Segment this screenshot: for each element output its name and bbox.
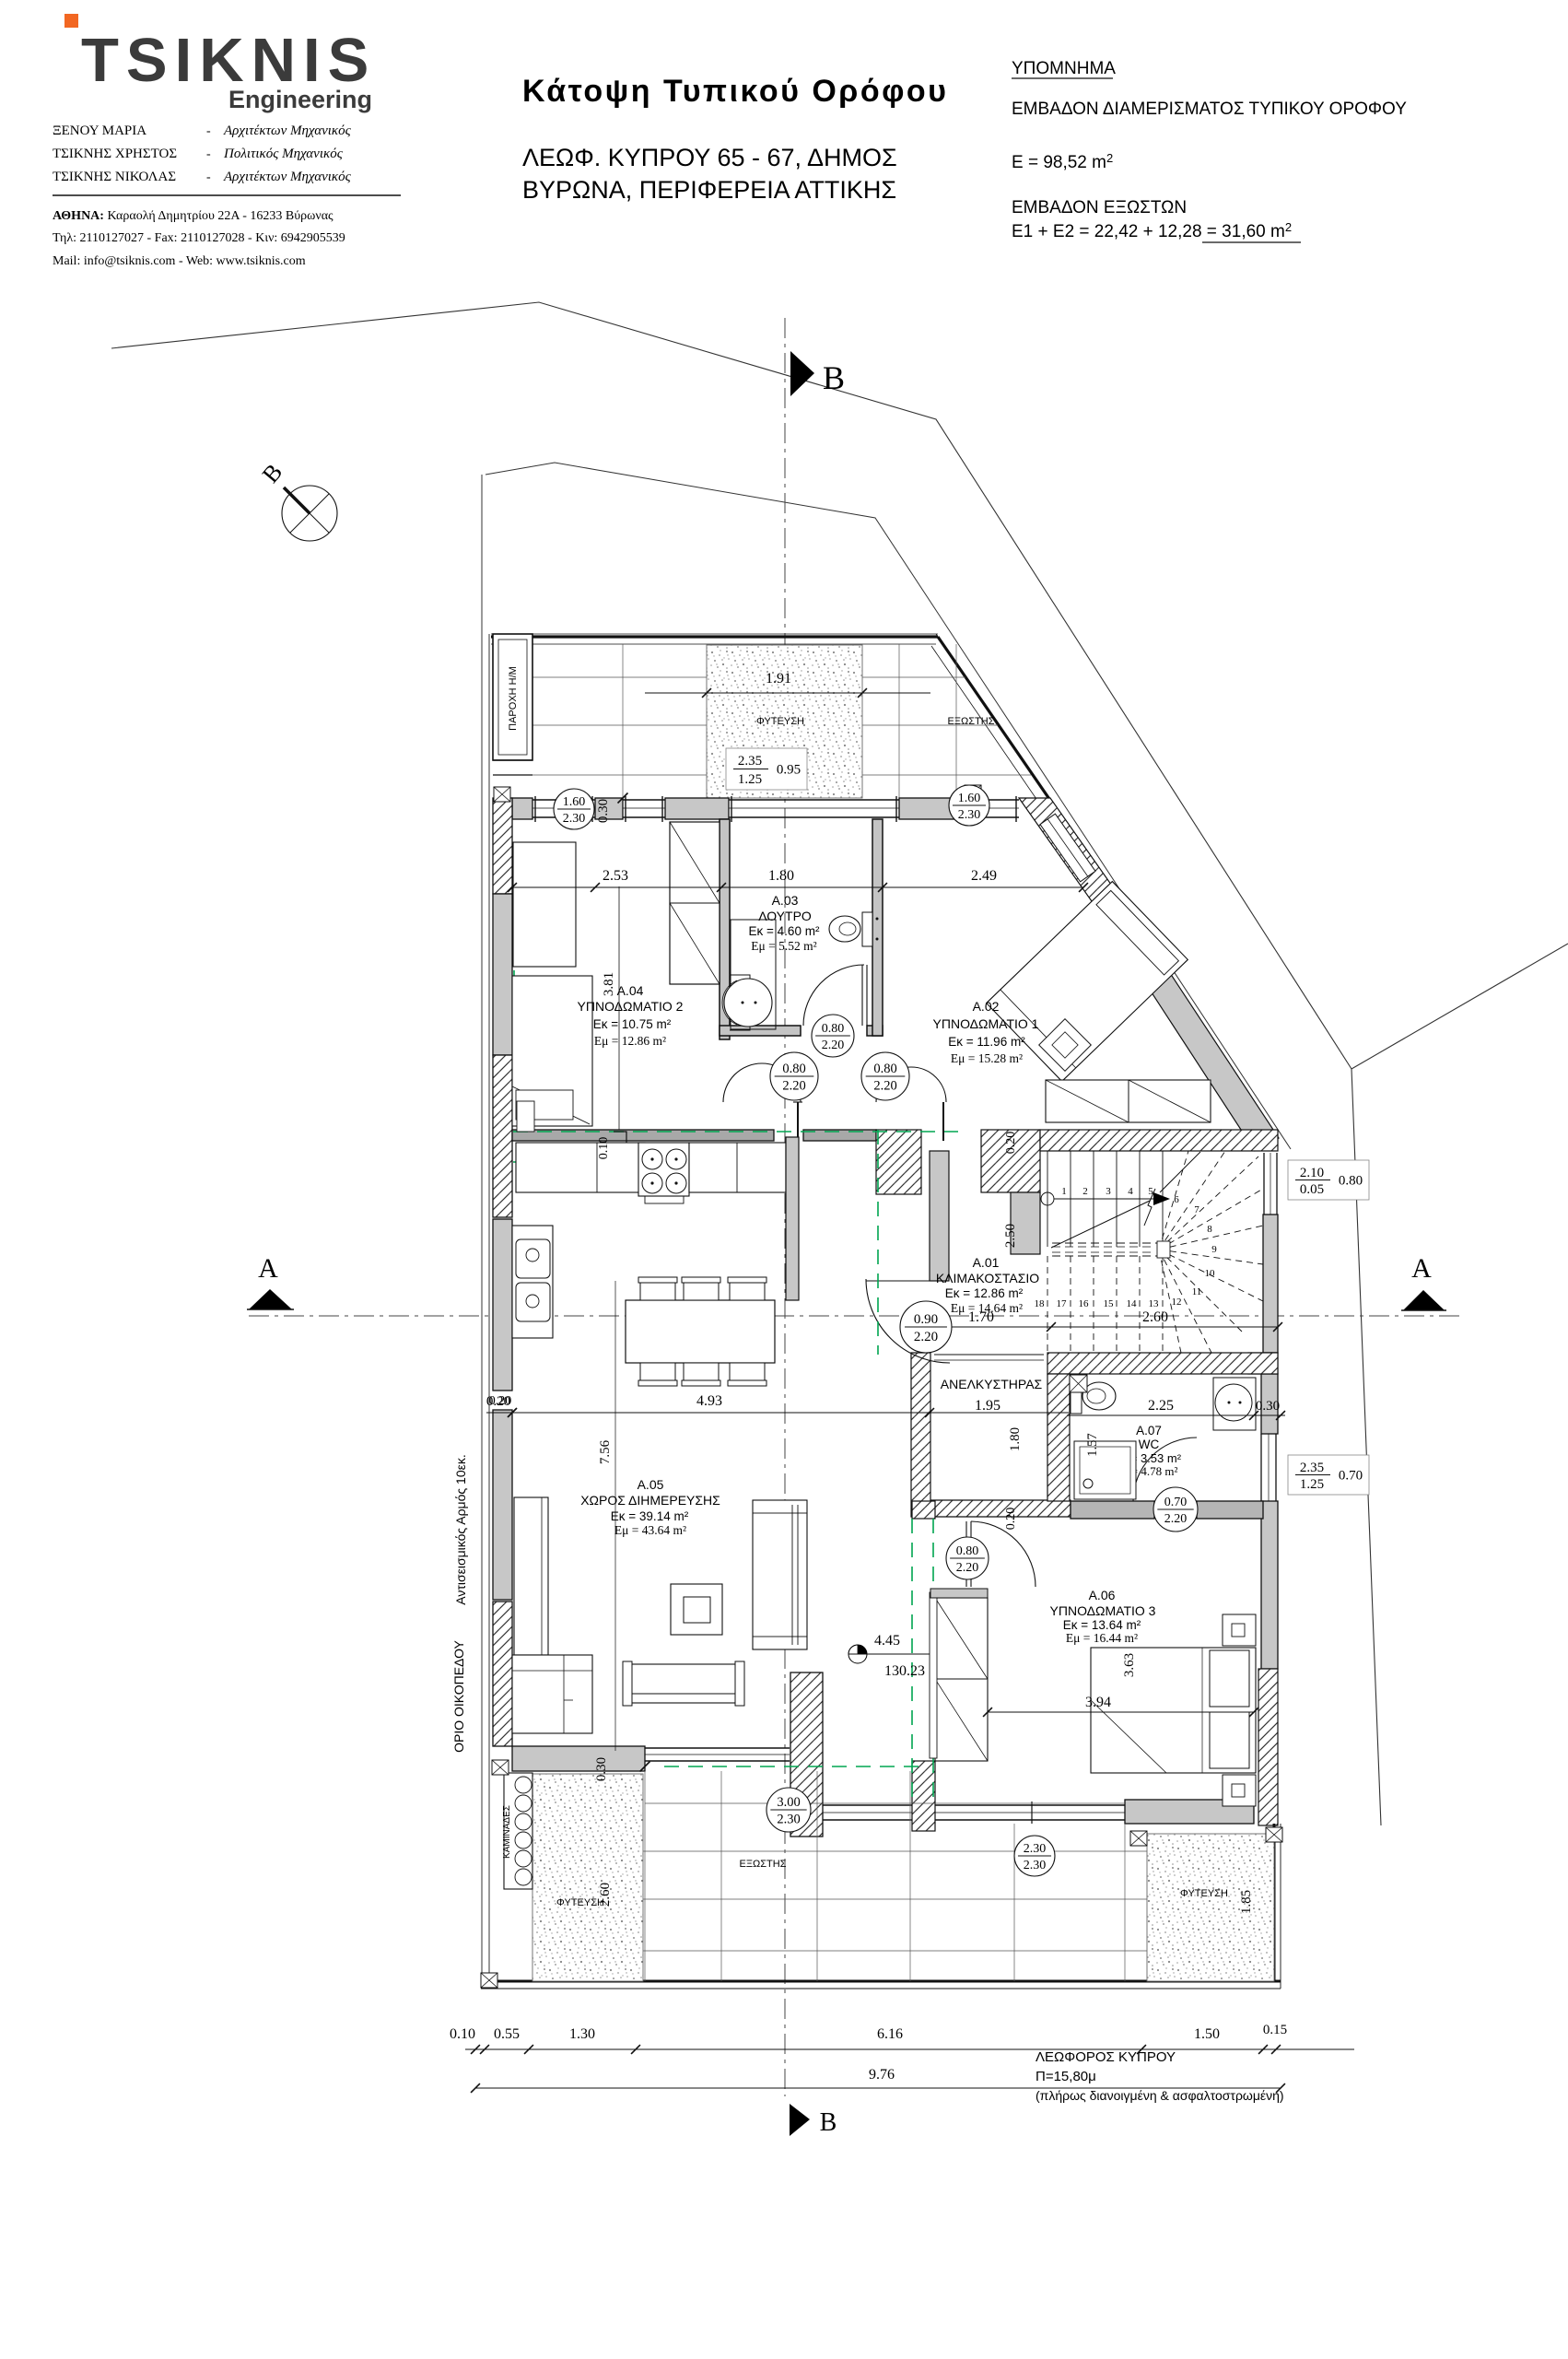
svg-text:13: 13 — [1149, 1298, 1160, 1309]
svg-text:7: 7 — [1194, 1204, 1199, 1215]
svg-text:ΞΕΝΟΥ ΜΑΡΙΑ: ΞΕΝΟΥ ΜΑΡΙΑ — [53, 123, 146, 138]
svg-text:A: A — [258, 1253, 278, 1284]
svg-text:1.95: 1.95 — [975, 1398, 1000, 1414]
svg-text:4: 4 — [1128, 1186, 1133, 1197]
svg-text:1.91: 1.91 — [766, 671, 791, 687]
svg-text:1.80: 1.80 — [768, 868, 794, 884]
svg-text:1.30: 1.30 — [569, 2026, 595, 2042]
svg-text:1.25: 1.25 — [1300, 1477, 1324, 1492]
svg-text:B: B — [823, 359, 845, 396]
svg-text:Εμ = 43.64 m²: Εμ = 43.64 m² — [614, 1523, 686, 1537]
svg-text:A.06: A.06 — [1089, 1588, 1116, 1602]
svg-text:Εκ = 13.64 m²: Εκ = 13.64 m² — [1063, 1618, 1141, 1632]
svg-text:2.30: 2.30 — [1024, 1842, 1047, 1856]
svg-text:0.20: 0.20 — [1004, 1132, 1018, 1155]
svg-text:2.25: 2.25 — [1148, 1398, 1174, 1414]
svg-text:E1 + E2 = 22,42 + 12,28 = 31,: E1 + E2 = 22,42 + 12,28 = 31,60 m2 — [1012, 220, 1292, 241]
svg-text:Κάτοψη Τυπικού Ορόφου: Κάτοψη Τυπικού Ορόφου — [522, 74, 948, 109]
svg-text:9.76: 9.76 — [869, 2067, 895, 2083]
svg-text:Εμ = 12.86 m²: Εμ = 12.86 m² — [594, 1034, 666, 1048]
svg-text:2.30: 2.30 — [777, 1813, 800, 1827]
svg-text:ΠΑΡΟΧΗ Η/Μ: ΠΑΡΟΧΗ Η/Μ — [508, 666, 519, 731]
svg-text:1.57: 1.57 — [1085, 1433, 1100, 1456]
svg-text:Π=15,80μ: Π=15,80μ — [1036, 2069, 1096, 2084]
svg-text:0.80: 0.80 — [1339, 1174, 1363, 1189]
svg-text:Εκ = 11.96 m²: Εκ = 11.96 m² — [948, 1035, 1025, 1049]
svg-text:0.30: 0.30 — [596, 799, 611, 823]
svg-text:2: 2 — [1082, 1186, 1088, 1197]
svg-text:ΤΣΙΚΝΗΣ ΝΙΚΟΛΑΣ: ΤΣΙΚΝΗΣ ΝΙΚΟΛΑΣ — [53, 170, 176, 184]
svg-text:10: 10 — [1205, 1268, 1216, 1279]
svg-text:Αρχιτέκτων Μηχανικός: Αρχιτέκτων Μηχανικός — [223, 123, 352, 138]
svg-text:-: - — [206, 124, 211, 138]
svg-text:0.80: 0.80 — [782, 1062, 805, 1076]
svg-text:4.93: 4.93 — [696, 1393, 722, 1409]
svg-text:0.05: 0.05 — [1300, 1182, 1324, 1197]
svg-text:WC: WC — [1139, 1438, 1160, 1451]
svg-text:ΥΠΟΜΝΗΜΑ: ΥΠΟΜΝΗΜΑ — [1012, 59, 1116, 78]
svg-text:0.20: 0.20 — [1004, 1508, 1018, 1531]
svg-text:-: - — [206, 147, 211, 161]
svg-text:0.10: 0.10 — [450, 2026, 475, 2042]
svg-text:0.30: 0.30 — [1256, 1399, 1280, 1414]
svg-text:ΟΡΙΟ ΟΙΚΟΠΕΔΟΥ: ΟΡΙΟ ΟΙΚΟΠΕΔΟΥ — [451, 1639, 466, 1752]
svg-text:11: 11 — [1192, 1286, 1202, 1297]
svg-text:Mail: info@tsiknis.com - Web:: Mail: info@tsiknis.com - Web: www.tsikni… — [53, 254, 306, 268]
svg-text:Εκ = 4.60 m²: Εκ = 4.60 m² — [749, 924, 820, 938]
svg-text:0.55: 0.55 — [494, 2026, 520, 2042]
svg-text:2.10: 2.10 — [1300, 1166, 1324, 1180]
svg-text:3.81: 3.81 — [602, 972, 616, 996]
svg-text:14: 14 — [1127, 1298, 1138, 1309]
svg-text:Engineering: Engineering — [228, 86, 372, 113]
svg-text:0.95: 0.95 — [777, 763, 801, 778]
svg-text:6.16: 6.16 — [877, 2026, 903, 2042]
svg-text:Εκ = 12.86 m²: Εκ = 12.86 m² — [945, 1286, 1024, 1300]
svg-text:ΛΟΥΤΡΟ: ΛΟΥΤΡΟ — [758, 909, 812, 923]
svg-text:0.15: 0.15 — [1263, 2023, 1287, 2037]
svg-text:2.53: 2.53 — [603, 868, 628, 884]
svg-text:E = 98,52 m2: E = 98,52 m2 — [1012, 151, 1113, 172]
svg-text:A: A — [1411, 1253, 1432, 1284]
svg-text:16: 16 — [1079, 1298, 1090, 1309]
svg-text:Εμ = 5.52 m²: Εμ = 5.52 m² — [751, 939, 816, 953]
svg-text:ΚΛΙΜΑΚΟΣΤΑΣΙΟ: ΚΛΙΜΑΚΟΣΤΑΣΙΟ — [936, 1271, 1039, 1285]
svg-text:5: 5 — [1148, 1186, 1153, 1197]
svg-text:3.00: 3.00 — [777, 1795, 800, 1810]
svg-text:2.20: 2.20 — [914, 1330, 938, 1344]
svg-text:Εμ = 15.28 m²: Εμ = 15.28 m² — [951, 1051, 1023, 1065]
svg-text:ΕΞΩΣΤΗΣ: ΕΞΩΣΤΗΣ — [740, 1859, 787, 1870]
svg-text:A.05: A.05 — [638, 1477, 664, 1492]
svg-text:2.35: 2.35 — [738, 754, 762, 769]
svg-text:Αρχιτέκτων Μηχανικός: Αρχιτέκτων Μηχανικός — [223, 170, 352, 184]
svg-text:2.60: 2.60 — [1142, 1309, 1168, 1325]
svg-text:ΥΠΝΟΔΩΜΑΤΙΟ 1: ΥΠΝΟΔΩΜΑΤΙΟ 1 — [933, 1016, 1039, 1031]
svg-text:TSIKNIS: TSIKNIS — [81, 26, 376, 95]
svg-text:3.63: 3.63 — [1122, 1653, 1137, 1677]
svg-text:2.49: 2.49 — [971, 868, 997, 884]
svg-text:9: 9 — [1211, 1244, 1217, 1255]
svg-text:ΕΞΩΣΤΗΣ: ΕΞΩΣΤΗΣ — [948, 716, 995, 727]
svg-text:Πολιτικός Μηχανικός: Πολιτικός Μηχανικός — [223, 147, 344, 161]
svg-text:0.80: 0.80 — [873, 1062, 896, 1076]
svg-text:1: 1 — [1061, 1186, 1067, 1197]
svg-text:1.60: 1.60 — [958, 792, 981, 805]
svg-text:0.30: 0.30 — [594, 1757, 609, 1781]
svg-text:0.70: 0.70 — [1164, 1496, 1188, 1509]
svg-text:A.03: A.03 — [772, 893, 799, 908]
svg-text:1.50: 1.50 — [1194, 2026, 1220, 2042]
svg-text:1.80: 1.80 — [1008, 1427, 1023, 1451]
svg-text:Εμ = 16.44 m²: Εμ = 16.44 m² — [1066, 1631, 1138, 1645]
svg-text:ΑΝΕΛΚΥΣΤΗΡΑΣ: ΑΝΕΛΚΥΣΤΗΡΑΣ — [941, 1377, 1043, 1391]
svg-text:1.70: 1.70 — [968, 1309, 994, 1325]
svg-text:A.01: A.01 — [973, 1255, 1000, 1270]
svg-text:2.30: 2.30 — [958, 808, 981, 822]
svg-text:(πλήρως διανοιγμένη & ασφαλτοσ: (πλήρως διανοιγμένη & ασφαλτοστρωμένη) — [1036, 2088, 1284, 2103]
svg-text:0.70: 0.70 — [1339, 1469, 1363, 1484]
svg-text:3.94: 3.94 — [1085, 1695, 1111, 1710]
svg-text:1.60: 1.60 — [563, 795, 586, 809]
svg-text:2.20: 2.20 — [782, 1079, 805, 1094]
svg-text:2.20: 2.20 — [1164, 1512, 1188, 1526]
svg-text:6: 6 — [1174, 1194, 1179, 1205]
svg-text:ΤΣΙΚΝΗΣ ΧΡΗΣΤΟΣ: ΤΣΙΚΝΗΣ ΧΡΗΣΤΟΣ — [53, 147, 177, 161]
svg-text:7.56: 7.56 — [598, 1439, 613, 1464]
svg-text:1.85: 1.85 — [1239, 1890, 1254, 1914]
svg-text:17: 17 — [1057, 1298, 1068, 1309]
svg-text:2.20: 2.20 — [822, 1039, 845, 1052]
svg-text:0.10: 0.10 — [597, 1137, 611, 1160]
svg-text:ΒΥΡΩΝΑ, ΠΕΡΙΦΕΡΕΙΑ ΑΤΤΙΚΗΣ: ΒΥΡΩΝΑ, ΠΕΡΙΦΕΡΕΙΑ ΑΤΤΙΚΗΣ — [522, 176, 896, 204]
svg-text:2.35: 2.35 — [1300, 1461, 1324, 1475]
svg-text:ΦΥΤΕΥΣΗ: ΦΥΤΕΥΣΗ — [1180, 1888, 1228, 1899]
svg-text:1.25: 1.25 — [738, 772, 762, 787]
svg-text:2.50: 2.50 — [1003, 1224, 1018, 1248]
svg-text:0.90: 0.90 — [914, 1312, 938, 1327]
svg-text:A.04: A.04 — [617, 983, 644, 998]
svg-text:ΥΠΝΟΔΩΜΑΤΙΟ 3: ΥΠΝΟΔΩΜΑΤΙΟ 3 — [1050, 1603, 1156, 1618]
svg-text:2.60: 2.60 — [598, 1883, 613, 1907]
svg-text:Τηλ: 2110127027 - Fax: 2110127: Τηλ: 2110127027 - Fax: 2110127028 - Κιν:… — [53, 231, 345, 245]
svg-text:2.20: 2.20 — [956, 1561, 979, 1575]
svg-text:ΑΘΗΝΑ: Καραολή Δημητρίου 22Α: ΑΘΗΝΑ: Καραολή Δημητρίου 22Α - 16233 Βύρ… — [53, 209, 333, 223]
svg-text:ΕΜΒΑΔΟΝ ΕΞΩΣΤΩΝ: ΕΜΒΑΔΟΝ ΕΞΩΣΤΩΝ — [1012, 198, 1187, 217]
svg-text:2.30: 2.30 — [1024, 1859, 1047, 1872]
svg-text:ΛΕΩΦΟΡΟΣ ΚΥΠΡΟΥ: ΛΕΩΦΟΡΟΣ ΚΥΠΡΟΥ — [1036, 2049, 1176, 2065]
svg-text:ΛΕΩΦ. ΚΥΠΡΟΥ 65 - 67, ΔΗΜΟΣ: ΛΕΩΦ. ΚΥΠΡΟΥ 65 - 67, ΔΗΜΟΣ — [522, 144, 897, 171]
svg-text:A.02: A.02 — [973, 999, 1000, 1014]
svg-text:ΥΠΝΟΔΩΜΑΤΙΟ 2: ΥΠΝΟΔΩΜΑΤΙΟ 2 — [578, 999, 684, 1014]
svg-text:Εκ = 39.14 m²: Εκ = 39.14 m² — [611, 1509, 689, 1523]
svg-text:ΦΥΤΕΥΣΗ: ΦΥΤΕΥΣΗ — [756, 716, 804, 727]
svg-text:12: 12 — [1172, 1297, 1182, 1308]
svg-text:Αντισεισμικός Αρμός 10εκ.: Αντισεισμικός Αρμός 10εκ. — [453, 1454, 468, 1605]
svg-text:2.30: 2.30 — [563, 812, 586, 826]
svg-text:2.20: 2.20 — [873, 1079, 896, 1094]
svg-text:0.20: 0.20 — [489, 1394, 512, 1408]
svg-text:18: 18 — [1035, 1298, 1046, 1309]
svg-text:ΕΜΒΑΔΟΝ ΔΙΑΜΕΡΙΣΜΑΤΟΣ ΤΥΠΙΚΟΥ: ΕΜΒΑΔΟΝ ΔΙΑΜΕΡΙΣΜΑΤΟΣ ΤΥΠΙΚΟΥ ΟΡΟΦΟΥ — [1012, 100, 1407, 119]
svg-text:0.80: 0.80 — [956, 1544, 979, 1558]
svg-text:ΧΩΡΟΣ ΔΙΗΜΕΡΕΥΣΗΣ: ΧΩΡΟΣ ΔΙΗΜΕΡΕΥΣΗΣ — [580, 1493, 720, 1508]
svg-text:3: 3 — [1106, 1186, 1111, 1197]
svg-text:ΚΑΜΙΝΑΔΕΣ: ΚΑΜΙΝΑΔΕΣ — [502, 1805, 512, 1859]
svg-text:B: B — [820, 2108, 837, 2137]
svg-text:4.45: 4.45 — [874, 1633, 900, 1649]
svg-text:15: 15 — [1104, 1298, 1115, 1309]
svg-text:-: - — [206, 170, 211, 184]
svg-text:A.07: A.07 — [1136, 1424, 1162, 1438]
svg-text:Εκ = 10.75 m²: Εκ = 10.75 m² — [593, 1017, 672, 1031]
svg-text:8: 8 — [1207, 1224, 1212, 1235]
svg-text:130.23: 130.23 — [884, 1663, 925, 1679]
svg-text:0.80: 0.80 — [822, 1022, 845, 1036]
